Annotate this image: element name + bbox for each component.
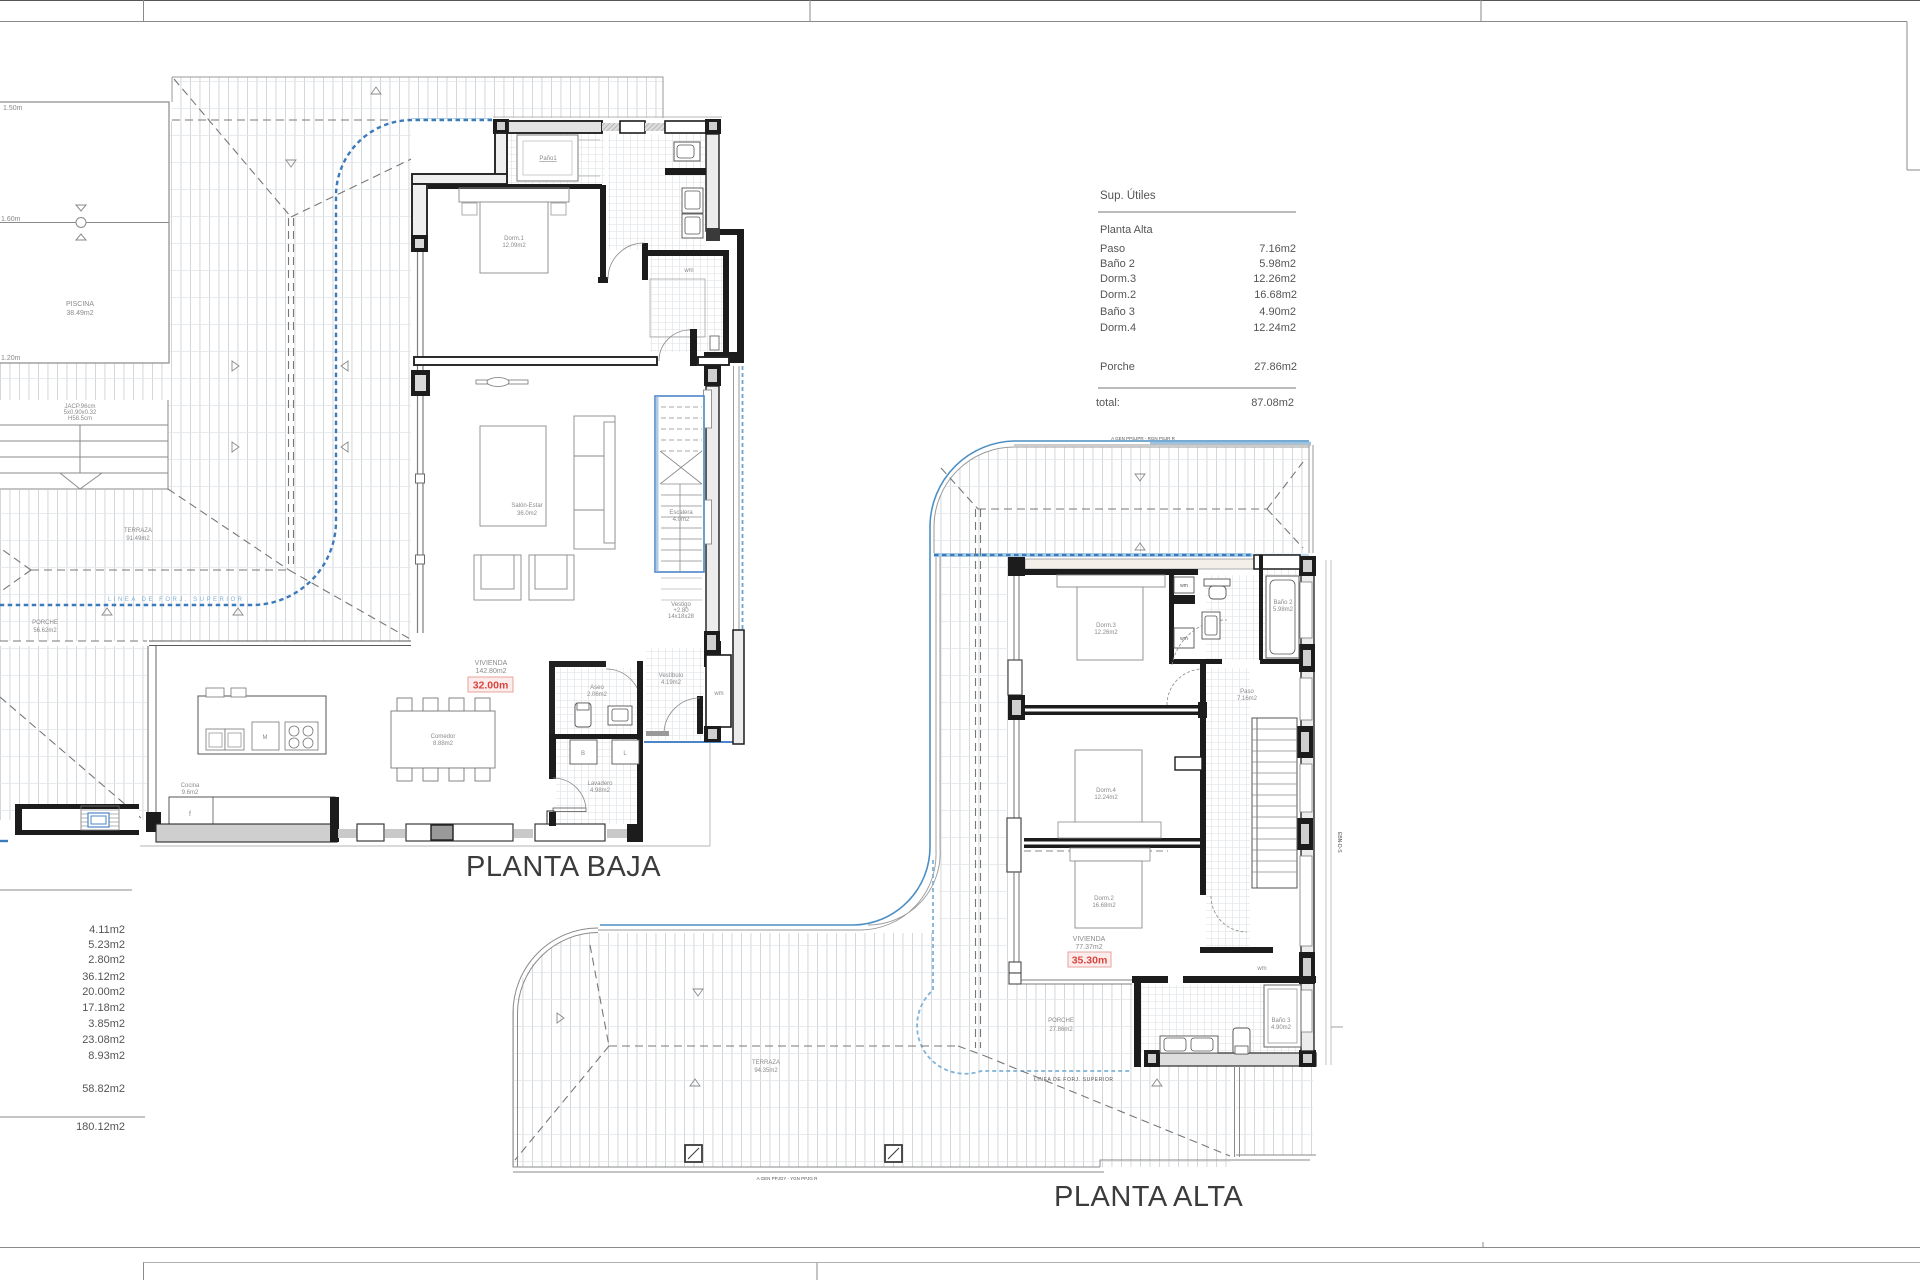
svg-text:4.90m2: 4.90m2: [1271, 1025, 1292, 1031]
svg-text:87.08m2: 87.08m2: [1251, 397, 1294, 409]
svg-text:Aseo: Aseo: [590, 685, 604, 691]
svg-text:wm: wm: [1180, 583, 1188, 589]
svg-text:M: M: [263, 735, 268, 741]
svg-text:12.24m2: 12.24m2: [1253, 322, 1296, 334]
svg-text:f: f: [189, 811, 191, 818]
svg-text:A GEN PPJGY - YGN PPJG R: A GEN PPJGY - YGN PPJG R: [757, 1176, 819, 1181]
svg-text:H58.5cm: H58.5cm: [68, 416, 92, 422]
svg-text:32.00m: 32.00m: [473, 680, 509, 692]
svg-text:Comedor: Comedor: [431, 734, 456, 740]
svg-text:B: B: [581, 751, 585, 757]
svg-text:Planta Alta: Planta Alta: [1100, 224, 1153, 236]
svg-text:total:: total:: [1096, 397, 1120, 409]
svg-text:17.18m2: 17.18m2: [82, 1002, 125, 1014]
svg-text:3.85m2: 3.85m2: [88, 1018, 125, 1030]
svg-text:27.86m2: 27.86m2: [1254, 361, 1297, 373]
svg-text:EBN-D-S: EBN-D-S: [1336, 832, 1342, 853]
svg-text:91.49m2: 91.49m2: [126, 536, 150, 542]
svg-text:Paso: Paso: [1100, 243, 1125, 255]
svg-text:Salón-Estar: Salón-Estar: [511, 503, 542, 509]
svg-text:12.09m2: 12.09m2: [502, 243, 526, 249]
svg-text:36.0m2: 36.0m2: [517, 511, 538, 517]
svg-text:PISCINA: PISCINA: [66, 301, 94, 308]
svg-text:12.26m2: 12.26m2: [1253, 273, 1296, 285]
svg-text:Dorm.4: Dorm.4: [1100, 322, 1136, 334]
svg-text:Dorm.1: Dorm.1: [504, 236, 524, 242]
svg-text:Cocina: Cocina: [181, 783, 200, 789]
svg-text:5.23m2: 5.23m2: [88, 939, 125, 951]
svg-text:5.98m2: 5.98m2: [1273, 607, 1294, 613]
svg-text:16.68m2: 16.68m2: [1254, 289, 1297, 301]
svg-text:Paso: Paso: [1240, 689, 1254, 695]
svg-text:wm: wm: [683, 268, 693, 274]
svg-text:LINEA DE FORJ. SUPERIOR: LINEA DE FORJ. SUPERIOR: [1034, 1077, 1114, 1083]
svg-text:142.80m2: 142.80m2: [475, 668, 506, 675]
svg-text:TERRAZA: TERRAZA: [124, 528, 152, 534]
svg-text:PLANTA BAJA: PLANTA BAJA: [466, 851, 661, 883]
svg-text:1.60m: 1.60m: [1, 216, 21, 223]
svg-text:Dorm.4: Dorm.4: [1096, 788, 1116, 794]
svg-text:Dorm.2: Dorm.2: [1100, 289, 1136, 301]
svg-text:Lavadero: Lavadero: [587, 781, 613, 787]
svg-text:wm: wm: [1256, 966, 1266, 972]
svg-text:wm: wm: [713, 691, 723, 697]
svg-text:Baño 3: Baño 3: [1271, 1018, 1291, 1024]
svg-text:LINEA DE FORJ. SUPERIOR: LINEA DE FORJ. SUPERIOR: [108, 597, 245, 603]
svg-text:PLANTA ALTA: PLANTA ALTA: [1054, 1181, 1243, 1213]
svg-text:8.88m2: 8.88m2: [433, 741, 454, 747]
svg-text:77.37m2: 77.37m2: [1075, 944, 1102, 951]
svg-text:Sup. Útiles: Sup. Útiles: [1100, 189, 1156, 202]
svg-text:7.16m2: 7.16m2: [1259, 243, 1296, 255]
svg-text:5.98m2: 5.98m2: [1259, 258, 1296, 270]
svg-text:16.68m2: 16.68m2: [1092, 903, 1116, 909]
svg-text:2.06m2: 2.06m2: [587, 692, 608, 698]
svg-text:23.08m2: 23.08m2: [82, 1034, 125, 1046]
svg-text:Baño 2: Baño 2: [1100, 258, 1135, 270]
svg-text:4.90m2: 4.90m2: [1259, 306, 1296, 318]
svg-text:Baño 3: Baño 3: [1100, 306, 1135, 318]
svg-text:Paño1: Paño1: [539, 156, 557, 162]
svg-text:4.0m2: 4.0m2: [673, 517, 690, 523]
svg-text:14x18x28: 14x18x28: [668, 614, 695, 620]
svg-text:1.50m: 1.50m: [3, 105, 23, 112]
svg-text:A GEN PPSJPR - RGN PSJR R: A GEN PPSJPR - RGN PSJR R: [1111, 436, 1176, 441]
svg-text:Vestíbulo: Vestíbulo: [659, 673, 684, 679]
svg-text:35.30m: 35.30m: [1072, 955, 1108, 967]
svg-text:Baño 2: Baño 2: [1273, 600, 1293, 606]
svg-text:Dorm.3: Dorm.3: [1100, 273, 1136, 285]
svg-text:VIVIENDA: VIVIENDA: [1073, 936, 1106, 943]
svg-text:56.62m2: 56.62m2: [33, 628, 57, 634]
svg-text:36.12m2: 36.12m2: [82, 971, 125, 983]
svg-text:TERRAZA: TERRAZA: [752, 1060, 780, 1066]
svg-text:1.20m: 1.20m: [1, 355, 21, 362]
svg-text:Porche: Porche: [1100, 361, 1135, 373]
svg-text:180.12m2: 180.12m2: [76, 1121, 125, 1133]
svg-text:4.19m2: 4.19m2: [661, 680, 682, 686]
svg-text:12.26m2: 12.26m2: [1094, 630, 1118, 636]
svg-text:27.86m2: 27.86m2: [1049, 1027, 1073, 1033]
svg-text:Dorm.2: Dorm.2: [1094, 896, 1114, 902]
svg-text:Escalera: Escalera: [669, 510, 693, 516]
svg-text:4.11m2: 4.11m2: [89, 924, 125, 936]
svg-text:PORCHE: PORCHE: [1048, 1018, 1074, 1024]
svg-text:20.00m2: 20.00m2: [82, 986, 125, 998]
svg-text:4.98m2: 4.98m2: [590, 788, 611, 794]
svg-text:94.35m2: 94.35m2: [754, 1068, 778, 1074]
svg-text:12.24m2: 12.24m2: [1094, 795, 1118, 801]
svg-text:58.82m2: 58.82m2: [82, 1083, 125, 1095]
svg-text:2.80m2: 2.80m2: [88, 954, 125, 966]
svg-text:38.49m2: 38.49m2: [66, 310, 93, 317]
svg-text:VIVIENDA: VIVIENDA: [475, 660, 508, 667]
svg-text:7.16m2: 7.16m2: [1237, 696, 1258, 702]
svg-text:9.6m2: 9.6m2: [182, 790, 199, 796]
svg-text:Dorm.3: Dorm.3: [1096, 623, 1116, 629]
svg-text:PORCHE: PORCHE: [32, 620, 58, 626]
svg-text:8.93m2: 8.93m2: [88, 1050, 125, 1062]
